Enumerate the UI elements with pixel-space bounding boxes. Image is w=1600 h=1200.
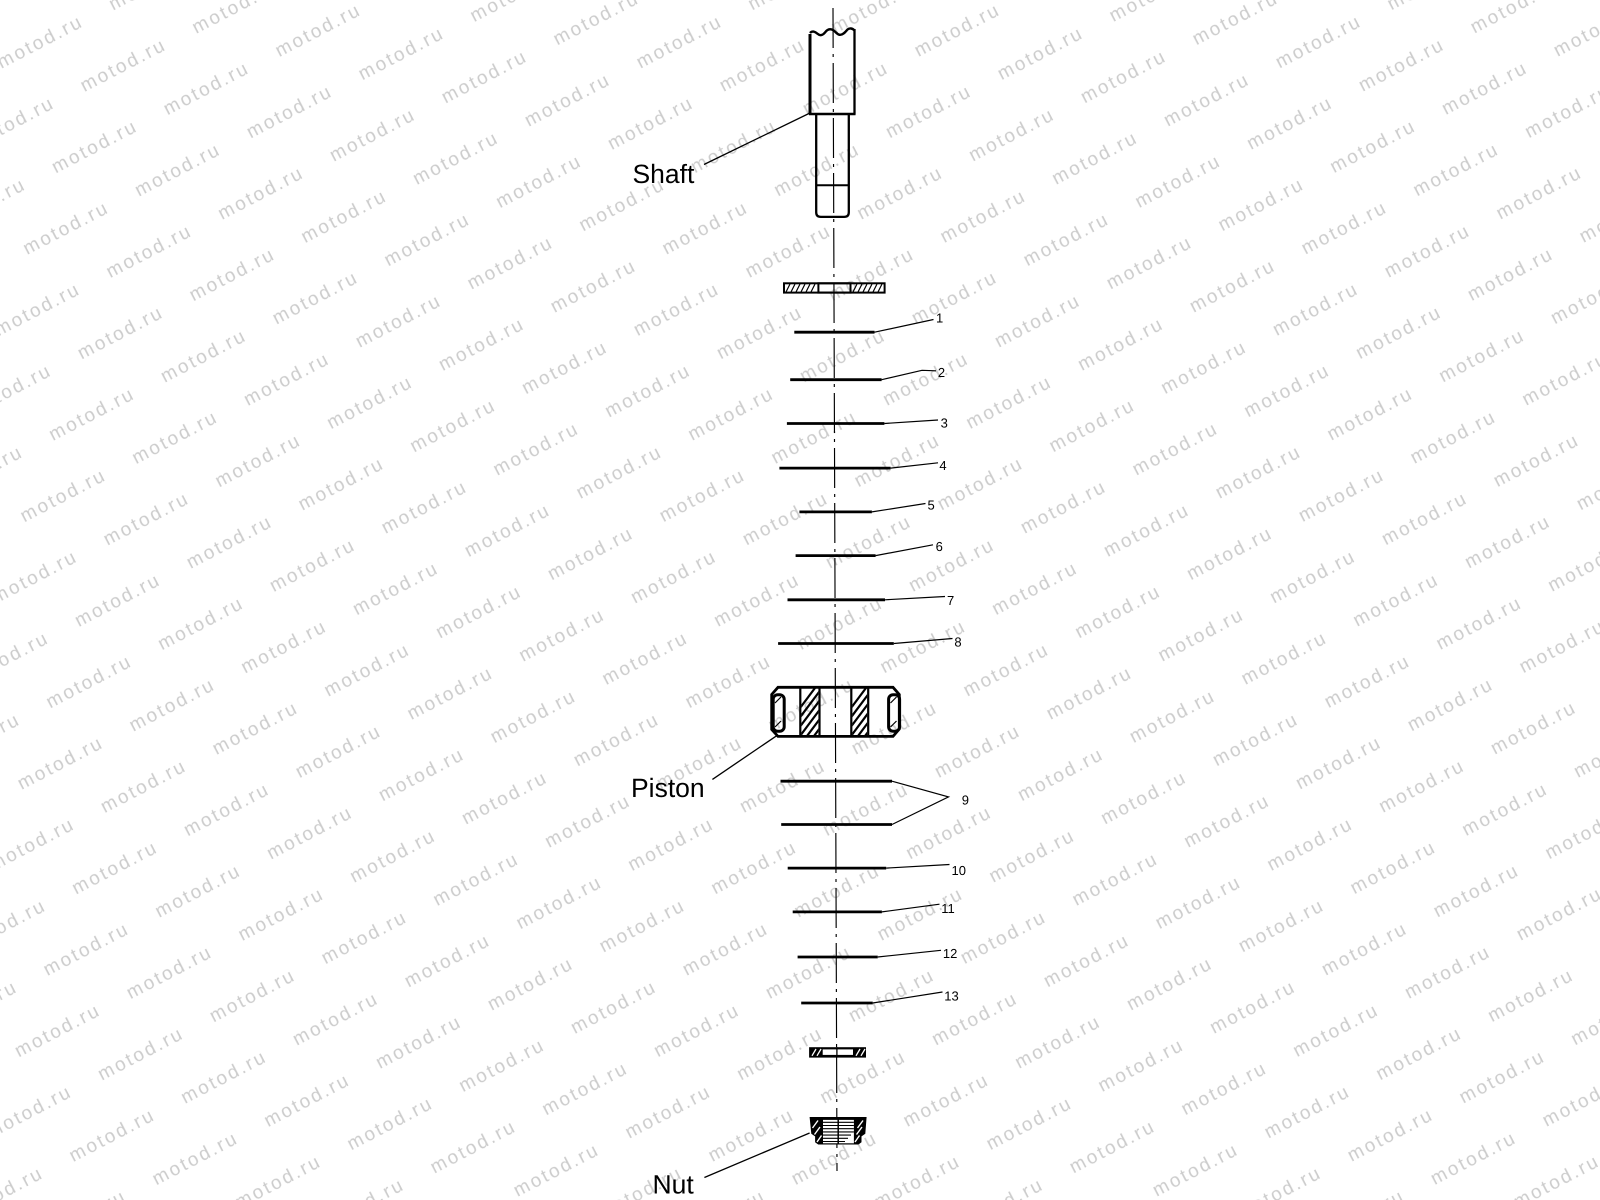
svg-text:4: 4 <box>939 458 946 473</box>
svg-text:Shaft: Shaft <box>633 159 696 189</box>
svg-text:2: 2 <box>938 365 945 380</box>
svg-text:6: 6 <box>936 539 943 554</box>
svg-text:3: 3 <box>941 415 948 430</box>
svg-text:7: 7 <box>947 593 954 608</box>
svg-text:Nut: Nut <box>653 1169 695 1199</box>
svg-text:8: 8 <box>954 635 961 650</box>
svg-text:5: 5 <box>928 498 935 513</box>
svg-text:11: 11 <box>941 901 955 916</box>
svg-text:9: 9 <box>962 792 969 807</box>
svg-text:13: 13 <box>944 988 958 1003</box>
svg-text:12: 12 <box>943 946 957 961</box>
svg-text:Piston: Piston <box>631 773 705 803</box>
svg-text:1: 1 <box>936 311 943 326</box>
svg-text:10: 10 <box>952 863 966 878</box>
